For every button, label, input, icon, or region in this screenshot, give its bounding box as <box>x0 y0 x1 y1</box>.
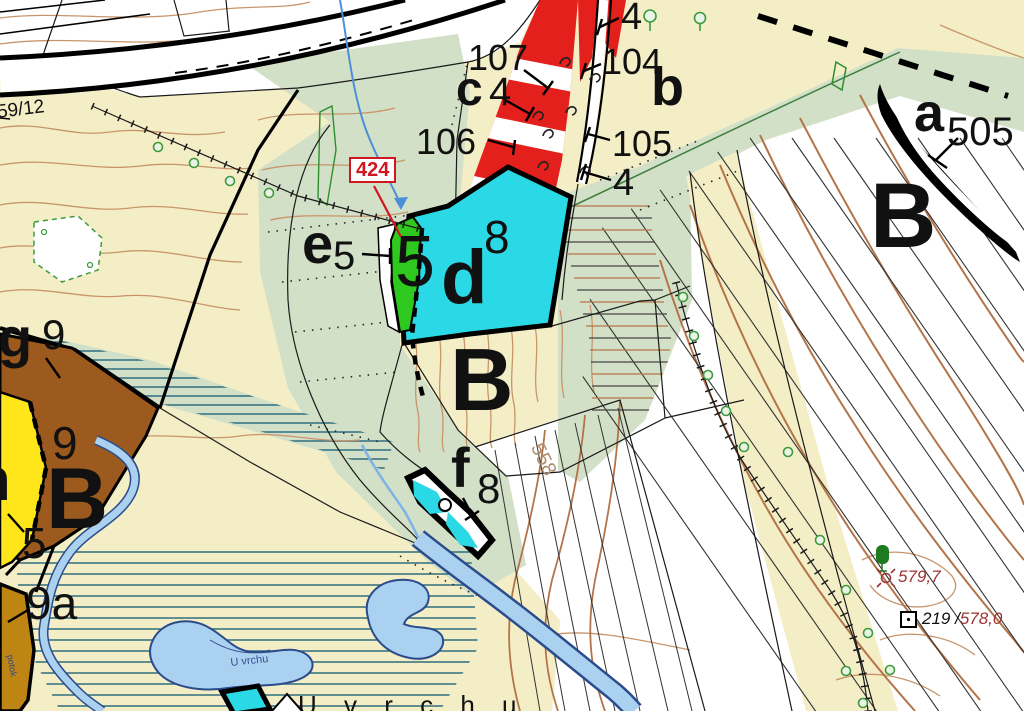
parcel-9-g-label: 9 <box>42 314 65 356</box>
parcel-106-label: 106 <box>416 124 476 160</box>
parcel-4-bottom-label: 4 <box>613 164 634 202</box>
parcel-219-elevation-label: 219 /578,0 <box>922 610 1002 627</box>
parcel-5-large-label: 5 <box>395 226 435 298</box>
parcel-8-f-label: 8 <box>477 468 500 510</box>
conifer-area-tree <box>876 545 889 564</box>
class-c-label: c <box>456 66 483 114</box>
survey-marker-symbol <box>901 612 916 627</box>
highlight-424-label[interactable]: 424 <box>349 157 396 183</box>
elevation-578: 578,0 <box>960 609 1003 628</box>
region-B-top-right-label: B <box>870 170 936 262</box>
class-g-label: g <box>0 310 32 366</box>
parcel-4c-label: 4 <box>489 72 511 112</box>
parcel-505-label: 505 <box>947 112 1014 152</box>
region-B-center-label: B <box>450 336 514 424</box>
cadastral-map-viewport: 59/12 107 c 4 106 104 b 105 4 4 424 e 5 … <box>0 0 1024 711</box>
class-d-label: d <box>441 240 487 316</box>
class-a-label: a <box>914 86 944 140</box>
parcel-9a-label: 9a <box>26 580 77 626</box>
parcel-5-small-label: 5 <box>333 236 355 276</box>
class-e-label: e <box>302 216 333 272</box>
parcel-8-d-label: 8 <box>484 214 510 260</box>
parcel-9-brown-label: 9 <box>52 420 78 466</box>
parcel-4-top-label: 4 <box>621 0 642 36</box>
place-name-large-label: U v r c h u <box>298 692 526 711</box>
parcel-105-label: 105 <box>612 126 672 162</box>
parcel-219-number: 219 / <box>922 609 960 628</box>
parcel-5-left-label: 5 <box>22 522 46 566</box>
class-f-label: f <box>451 440 470 496</box>
elevation-579-label: 579,7 <box>898 568 941 585</box>
class-b-label: b <box>651 60 684 114</box>
class-n-partial-label: n <box>0 450 11 510</box>
